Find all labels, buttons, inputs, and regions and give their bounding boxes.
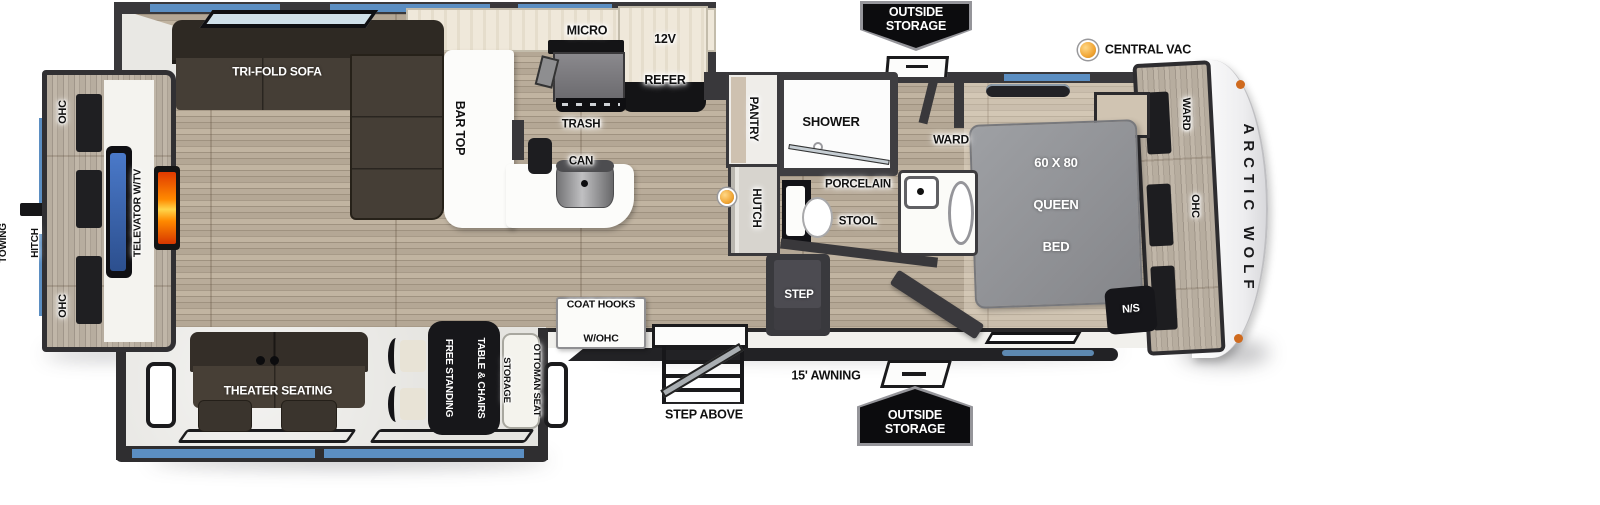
outside-storage-banner-bottom: OUTSIDE STORAGE bbox=[857, 386, 973, 446]
dinette-chair-back bbox=[388, 338, 404, 374]
label-line: TOWING bbox=[0, 223, 9, 263]
label-line: PORCELAIN bbox=[825, 178, 891, 190]
tv-screen bbox=[110, 153, 126, 271]
label-ward-front: WARD bbox=[1179, 98, 1191, 131]
label-line: QUEEN bbox=[1033, 198, 1078, 212]
label-televator: TELEVATOR W/TV bbox=[132, 169, 143, 257]
label-line: FREE STANDING bbox=[442, 338, 453, 419]
entry-door bbox=[652, 324, 748, 348]
outside-storage-door-bottom-handle bbox=[902, 372, 926, 376]
theater-footrest bbox=[281, 400, 337, 432]
rear-cabinet-panel bbox=[76, 256, 102, 324]
outside-storage-banner-top: OUTSIDE STORAGE bbox=[860, 1, 972, 51]
clearance-light-icon bbox=[1236, 80, 1245, 89]
label-theater-seating: THEATER SEATING bbox=[224, 385, 333, 398]
central-vac-icon bbox=[1080, 42, 1096, 58]
outside-storage-label: OUTSIDE bbox=[857, 408, 973, 422]
island-stool bbox=[528, 138, 552, 174]
window-icon bbox=[200, 10, 379, 28]
vanity-faucet bbox=[917, 188, 924, 195]
front-cabinet-panel bbox=[1146, 183, 1173, 246]
label-line: W/OHC bbox=[567, 333, 635, 344]
outside-storage-label: STORAGE bbox=[860, 19, 972, 33]
label-porcelain-stool: PORCELAIN STOOL bbox=[825, 153, 891, 252]
label-ohc-front: OHC bbox=[1188, 194, 1200, 218]
label-line: STOOL bbox=[825, 215, 891, 227]
label-line: CAN bbox=[562, 155, 601, 167]
label-line: HITCH bbox=[31, 223, 42, 263]
central-vac-inlet-icon bbox=[720, 190, 734, 204]
label-storage-ottoman: OTTOMAN SEAT STORAGE bbox=[480, 344, 562, 417]
cupholder-icon bbox=[256, 356, 265, 365]
label-coat-hooks: COAT HOOKS W/OHC bbox=[567, 277, 635, 368]
label-line: 12V bbox=[644, 33, 685, 47]
label-trash-can: TRASH CAN bbox=[562, 93, 601, 192]
window-icon bbox=[985, 332, 1082, 344]
label-awning: 15' AWNING bbox=[791, 369, 860, 383]
bedroom-partition bbox=[954, 76, 964, 128]
label-micro: MICRO bbox=[567, 24, 608, 38]
cupholder-icon bbox=[270, 356, 279, 365]
label-bar-top: BAR TOP bbox=[452, 101, 466, 156]
label-nightstand: N/S bbox=[1122, 303, 1141, 316]
pantry-door bbox=[731, 77, 746, 163]
outside-storage-label: OUTSIDE bbox=[860, 5, 972, 19]
bottom-slide-accent bbox=[132, 449, 315, 458]
label-line: OTTOMAN SEAT bbox=[531, 344, 541, 417]
rear-cabinet-panel bbox=[76, 170, 102, 228]
island-appliance bbox=[512, 120, 524, 160]
label-line: STORAGE bbox=[501, 344, 511, 417]
bedroom-window bbox=[986, 84, 1070, 97]
window-icon bbox=[146, 362, 176, 428]
label-hutch: HUTCH bbox=[750, 188, 762, 227]
outside-storage-label: STORAGE bbox=[857, 422, 973, 436]
bottom-slide-accent bbox=[324, 449, 524, 458]
floorplan-diagram: OUTSIDE STORAGE OUTSIDE STORAGE TRI-FOLD… bbox=[0, 0, 1600, 505]
label-towing-hitch: TOWING HITCH bbox=[0, 223, 63, 263]
awning-rail-accent bbox=[1002, 350, 1094, 356]
label-line: 60 X 80 bbox=[1033, 156, 1078, 170]
label-ohc-rear-top: OHC bbox=[58, 100, 70, 124]
label-step-above: STEP ABOVE bbox=[665, 408, 743, 422]
label-brand: ARCTIC WOLF bbox=[1240, 124, 1256, 295]
label-step: STEP bbox=[784, 289, 813, 301]
fireplace-flame bbox=[158, 172, 176, 244]
theater-footrest bbox=[198, 400, 252, 432]
rear-cabinet-panel bbox=[76, 94, 102, 152]
outside-storage-door-top-handle bbox=[906, 65, 928, 68]
label-line: BED bbox=[1033, 240, 1078, 254]
top-wall-accent bbox=[1004, 74, 1090, 81]
dinette-chair-back bbox=[388, 386, 404, 422]
label-pantry: PANTRY bbox=[747, 97, 759, 142]
clearance-light-icon bbox=[1234, 334, 1243, 343]
label-line: TRASH bbox=[562, 118, 601, 130]
label-line: COAT HOOKS bbox=[567, 299, 635, 310]
label-queen-bed: 60 X 80 QUEEN BED bbox=[1033, 128, 1078, 282]
label-ward-bath: WARD bbox=[933, 134, 969, 147]
sofa-chaise bbox=[350, 54, 444, 220]
label-ohc-rear-bottom: OHC bbox=[58, 294, 70, 318]
label-central-vac: CENTRAL VAC bbox=[1105, 43, 1191, 57]
label-tri-fold-sofa: TRI-FOLD SOFA bbox=[232, 66, 321, 79]
label-line: REFER bbox=[644, 74, 685, 88]
label-12v-refer: 12V REFER bbox=[644, 6, 685, 114]
vanity-basin bbox=[948, 181, 974, 245]
label-shower: SHOWER bbox=[802, 115, 859, 129]
